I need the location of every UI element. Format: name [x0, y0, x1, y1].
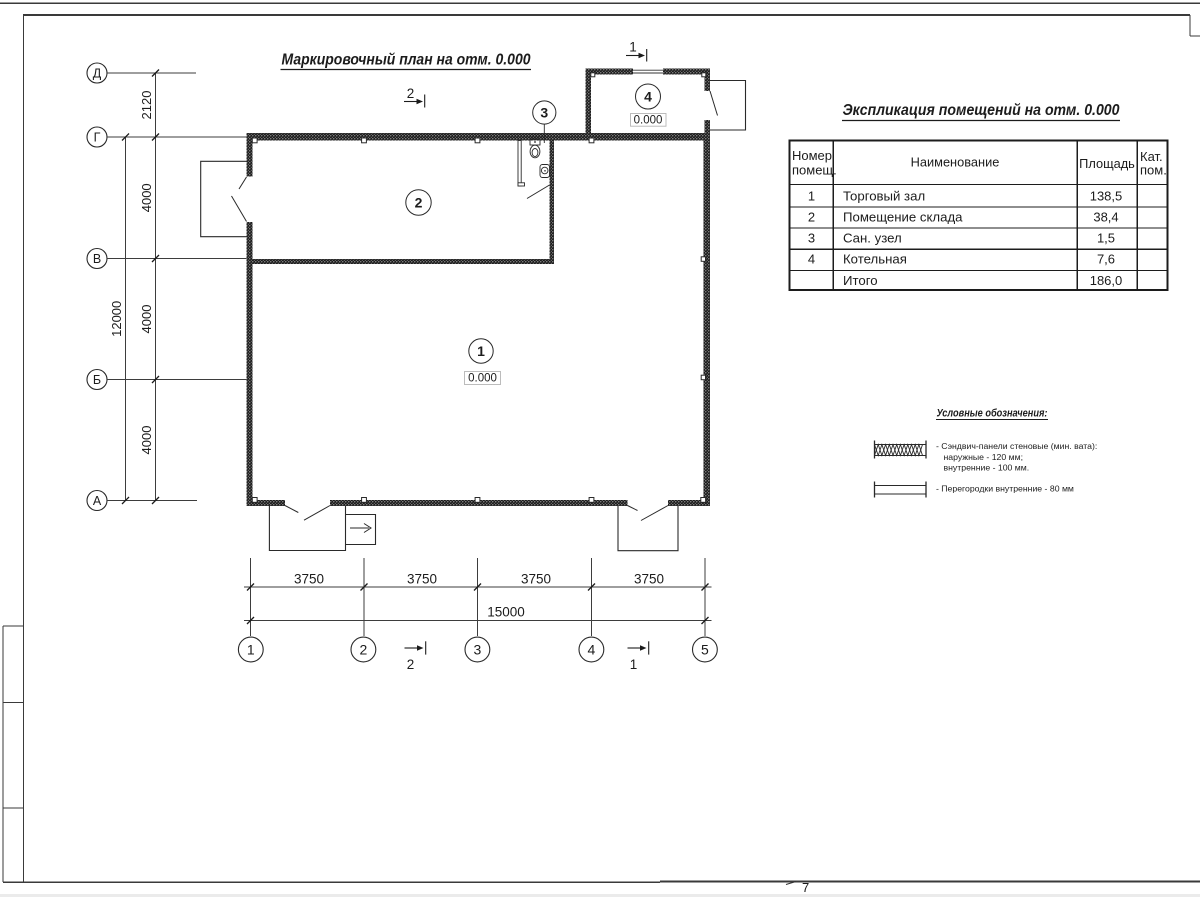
svg-text:3: 3	[540, 105, 548, 121]
svg-text:3750: 3750	[634, 572, 664, 587]
svg-text:Сан. узел: Сан. узел	[843, 231, 902, 246]
svg-text:Маркировочный план на отм. 0.0: Маркировочный план на отм. 0.000	[282, 52, 531, 69]
svg-text:4000: 4000	[139, 305, 154, 334]
svg-text:5: 5	[701, 642, 709, 658]
svg-text:помещ.: помещ.	[792, 163, 837, 178]
svg-text:Итого: Итого	[843, 273, 878, 288]
svg-text:Г: Г	[94, 131, 101, 145]
svg-text:3750: 3750	[294, 572, 324, 587]
svg-text:4: 4	[808, 252, 815, 267]
svg-text:пом.: пом.	[1140, 163, 1167, 178]
svg-text:12000: 12000	[109, 301, 124, 337]
svg-text:внутренние - 100 мм.: внутренние - 100 мм.	[944, 463, 1030, 473]
svg-text:- Сэндвич-панели стеновые (мин: - Сэндвич-панели стеновые (мин. вата):	[936, 441, 1097, 451]
svg-text:Наименование: Наименование	[911, 155, 1000, 170]
svg-text:0.000: 0.000	[634, 115, 663, 127]
svg-text:1: 1	[629, 40, 637, 55]
svg-text:4000: 4000	[139, 426, 154, 455]
svg-text:2120: 2120	[139, 91, 154, 120]
svg-text:2: 2	[415, 195, 423, 211]
svg-text:7: 7	[802, 880, 809, 895]
svg-text:138,5: 138,5	[1090, 189, 1123, 204]
svg-text:Условные обозначения:: Условные обозначения:	[937, 408, 1048, 420]
svg-text:Площадь: Площадь	[1079, 156, 1135, 171]
svg-text:В: В	[93, 252, 101, 266]
svg-text:Д: Д	[93, 67, 102, 81]
svg-text:1,5: 1,5	[1097, 231, 1115, 246]
svg-text:2: 2	[360, 642, 368, 658]
svg-text:4: 4	[644, 89, 652, 105]
svg-text:- Перегородки внутренние - 80: - Перегородки внутренние - 80 мм	[936, 484, 1074, 494]
svg-text:1: 1	[808, 189, 815, 204]
svg-text:2: 2	[407, 657, 415, 672]
svg-text:3750: 3750	[407, 572, 437, 587]
svg-text:Помещение склада: Помещение склада	[843, 210, 963, 225]
svg-text:2: 2	[808, 210, 815, 225]
svg-text:Номер: Номер	[792, 148, 832, 163]
svg-text:15000: 15000	[487, 605, 525, 620]
svg-text:наружные - 120 мм;: наружные - 120 мм;	[944, 452, 1023, 462]
svg-text:Б: Б	[93, 373, 101, 387]
svg-text:1: 1	[477, 343, 485, 359]
svg-text:А: А	[93, 494, 102, 508]
svg-text:0.000: 0.000	[468, 373, 497, 385]
svg-text:1: 1	[630, 657, 638, 672]
svg-text:Экспликация помещений на отм.: Экспликация помещений на отм. 0.000	[843, 102, 1120, 119]
svg-text:Торговый зал: Торговый зал	[843, 189, 925, 204]
svg-text:1: 1	[247, 642, 255, 658]
svg-text:2: 2	[407, 86, 415, 101]
svg-text:Котельная: Котельная	[843, 252, 907, 267]
svg-text:4: 4	[588, 642, 596, 658]
svg-text:4000: 4000	[139, 183, 154, 212]
svg-text:3: 3	[808, 231, 815, 246]
svg-text:7,6: 7,6	[1097, 252, 1115, 267]
svg-text:186,0: 186,0	[1090, 273, 1123, 288]
svg-text:3750: 3750	[521, 572, 551, 587]
svg-text:38,4: 38,4	[1093, 210, 1118, 225]
svg-text:3: 3	[474, 642, 482, 658]
